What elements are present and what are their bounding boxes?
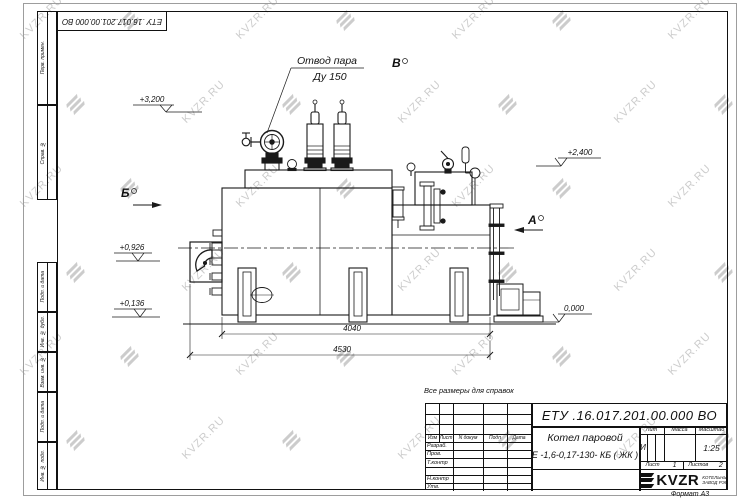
gauge	[462, 147, 480, 205]
view-arrow-b	[133, 202, 162, 208]
row-label-utv: Утв.	[427, 483, 453, 491]
elevation-2400	[536, 158, 601, 166]
view-marker-a-ref	[539, 216, 544, 221]
margin-stamp-label: Подп. и дата	[40, 401, 46, 432]
elevation-0136-label: +0,136	[120, 299, 145, 308]
sheets-label: Листов	[688, 462, 708, 468]
fan-unit	[494, 284, 543, 322]
row-label-prov: Пров.	[427, 450, 453, 458]
elevation-3200-label: +3,200	[140, 95, 165, 104]
lit-header: Лит	[639, 426, 664, 434]
title-block: Изм Лист N докум Подп Дата Разраб. Пров.…	[425, 403, 727, 490]
callout-line2: Ду 150	[312, 71, 346, 83]
view-marker-v: В	[392, 56, 401, 70]
row-label-tkontr: Т.контр	[427, 458, 453, 467]
company-sub2: ЗАВОД РЭП	[702, 480, 728, 485]
margin-stamp-label: Справ. №	[40, 141, 46, 164]
sheet-label: Лист	[645, 462, 659, 468]
margin-stamp-label: Перв. примен.	[40, 41, 46, 74]
scale-header: Масштаб	[695, 426, 728, 434]
dim-4530-label: 4530	[333, 345, 351, 354]
reference-note: Все размеры для справок	[424, 386, 514, 395]
margin-stamp-inv-podl: Инв. № подл.	[37, 442, 57, 490]
view-marker-a: А	[527, 213, 537, 227]
row-label-razrab: Разраб.	[427, 442, 453, 450]
lit-value: И	[639, 434, 647, 461]
view-marker-b-ref	[132, 189, 137, 194]
col-header-izm: Изм	[426, 434, 439, 442]
sheet-cell: Лист 1	[639, 461, 683, 469]
title-doc-number: ЕТУ .16.017.201.00.000 ВО	[531, 404, 728, 426]
elevation-3200	[133, 105, 202, 112]
dim-4040-label: 4040	[343, 324, 361, 333]
elevation-0926	[114, 253, 160, 261]
blueprint-page: KVZR.RUKVZR.RUKVZR.RUKVZR.RUKVZR.RUKVZR.…	[0, 0, 750, 500]
company-name: KVZR	[656, 472, 699, 489]
corner-doc-number: ЕТУ .16.017.201.00.000 ВО	[62, 17, 162, 26]
company-logo-cell: KVZR КОТЕЛЬНЫЙ ЗАВОД РЭП	[639, 469, 728, 491]
view-marker-b: Б	[121, 186, 130, 200]
safety-valve	[331, 100, 353, 171]
margin-stamp-podp-data-1: Подп. и дата	[37, 262, 57, 312]
view-arrow-a	[514, 227, 543, 233]
col-header-podp: Подп	[483, 434, 507, 442]
scale-value: 1:25	[695, 434, 728, 461]
level-gauge	[392, 182, 445, 230]
kvzr-logo-icon	[639, 471, 653, 490]
col-header-dokum: N докум	[453, 434, 483, 442]
margin-stamp-sprav-no: Справ. №	[37, 105, 57, 200]
elevation-2400-label: +2,400	[568, 148, 593, 157]
product-name-line1: Котел паровой	[531, 428, 639, 448]
margin-stamp-vzam-inv: Взам. инв. №	[37, 352, 57, 392]
col-header-list: Лист	[439, 434, 453, 442]
margin-stamp-label: Инв. № дубл.	[40, 316, 46, 347]
elevation-0000-label: 0,000	[564, 304, 585, 313]
safety-valve	[304, 100, 326, 171]
left-nozzles	[210, 230, 222, 295]
sheet-value: 1	[673, 462, 677, 469]
sheets-value: 2	[719, 462, 723, 469]
corner-doc-number-box: ЕТУ .16.017.201.00.000 ВО	[57, 11, 167, 31]
margin-stamp-perv-primen: Перв. примен.	[37, 11, 57, 105]
col-header-data: Дата	[507, 434, 531, 442]
band-fitting	[288, 160, 297, 171]
margin-stamp-podp-data-2: Подп. и дата	[37, 392, 57, 442]
margin-stamp-inv-dubl: Инв. № дубл.	[37, 312, 57, 352]
row-label-nkontr: Н.контр	[427, 475, 453, 483]
sheets-cell: Листов 2	[683, 461, 728, 469]
callout-line1: Отвод пара	[297, 55, 357, 67]
elevation-0926-label: +0,926	[120, 243, 145, 252]
margin-stamp-label: Подп. и дата	[40, 271, 46, 302]
steam-valve	[242, 131, 284, 171]
format-label: Формат А3	[640, 490, 740, 499]
product-name-line2: Е -1,6-0,17-130- КБ ( ЖК )	[531, 446, 639, 464]
margin-stamp-label: Инв. № подл.	[40, 450, 46, 482]
view-marker-v-ref	[403, 59, 408, 64]
elevation-0136	[112, 309, 160, 317]
mass-header: Масса	[664, 426, 695, 434]
margin-stamp-label: Взам. инв. №	[40, 356, 46, 388]
